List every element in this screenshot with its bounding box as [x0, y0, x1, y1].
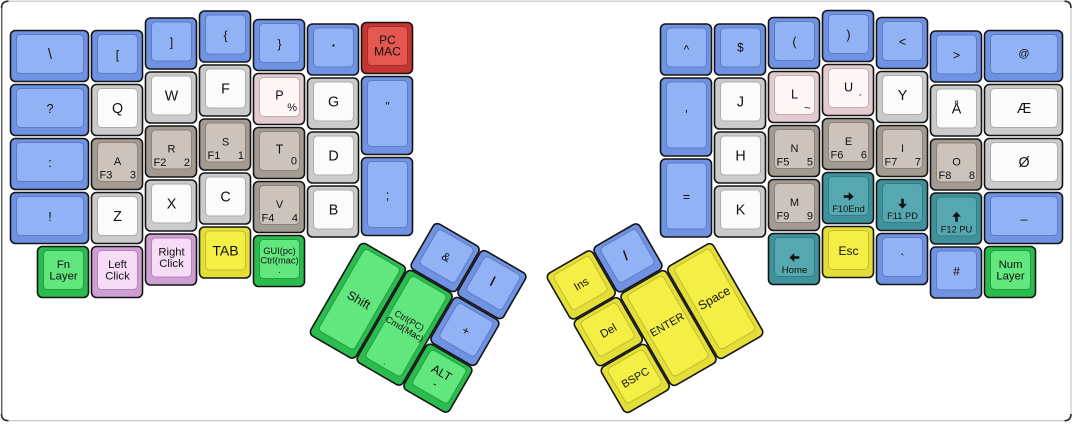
- svg-text:Left: Left: [108, 259, 128, 271]
- svg-text:<: <: [899, 35, 906, 49]
- svg-text:3: 3: [130, 169, 136, 181]
- svg-text:I: I: [901, 143, 904, 155]
- svg-text:Click: Click: [159, 258, 184, 270]
- svg-text:Layer: Layer: [49, 271, 77, 283]
- svg-text:R: R: [168, 144, 176, 156]
- svg-text:Z: Z: [113, 209, 122, 225]
- svg-text:F4: F4: [262, 212, 275, 224]
- svg-text:F6: F6: [831, 149, 844, 161]
- svg-text:!: !: [48, 210, 51, 224]
- svg-text:5: 5: [807, 156, 813, 168]
- svg-text:Num: Num: [999, 259, 1023, 271]
- svg-text:F1: F1: [208, 150, 221, 162]
- svg-text:): ): [846, 28, 850, 42]
- svg-text:?: ?: [47, 102, 54, 116]
- svg-text:%: %: [287, 102, 297, 114]
- svg-text:Home: Home: [782, 265, 808, 276]
- svg-text:MAC: MAC: [374, 45, 401, 59]
- svg-text:C: C: [220, 190, 230, 206]
- svg-text:": ": [385, 100, 389, 114]
- svg-text:Y: Y: [898, 88, 908, 104]
- svg-text:F2: F2: [154, 157, 167, 169]
- svg-text:F3: F3: [100, 169, 113, 181]
- svg-text:Layer: Layer: [996, 271, 1024, 283]
- svg-text:D: D: [328, 149, 338, 165]
- svg-text:B: B: [329, 203, 339, 219]
- svg-text:~: ~: [804, 103, 810, 115]
- svg-text:F8: F8: [939, 170, 952, 182]
- svg-text:@: @: [1018, 48, 1029, 60]
- svg-text:P: P: [275, 89, 283, 103]
- svg-text:}: }: [277, 37, 281, 51]
- svg-text:F5: F5: [777, 156, 790, 168]
- svg-text:$: $: [737, 43, 744, 55]
- svg-text:Right: Right: [158, 246, 185, 258]
- svg-text:F9: F9: [777, 210, 790, 222]
- svg-text:X: X: [167, 197, 177, 213]
- svg-text:': ': [685, 108, 687, 122]
- svg-text:Ø: Ø: [1018, 155, 1029, 171]
- svg-text:L: L: [791, 88, 798, 102]
- svg-text:Q: Q: [112, 101, 123, 117]
- svg-text:F: F: [221, 82, 230, 98]
- svg-text:^: ^: [684, 43, 690, 57]
- svg-text:N: N: [791, 143, 799, 155]
- svg-text:F7: F7: [885, 156, 898, 168]
- svg-text:=: =: [683, 190, 690, 204]
- svg-text:U: U: [844, 81, 853, 95]
- svg-text:O: O: [952, 157, 961, 169]
- svg-text:2: 2: [184, 157, 190, 169]
- svg-text:E: E: [845, 136, 852, 148]
- svg-text:G: G: [328, 95, 339, 111]
- svg-text:A: A: [114, 156, 122, 168]
- svg-text:TAB: TAB: [212, 243, 238, 259]
- svg-text:9: 9: [807, 210, 813, 222]
- svg-text:Click: Click: [105, 271, 130, 283]
- svg-text:T: T: [276, 143, 284, 157]
- svg-text:GUI(pc): GUI(pc): [263, 246, 296, 256]
- svg-text:;: ;: [386, 189, 389, 203]
- svg-text:S: S: [222, 137, 229, 149]
- svg-text:.: .: [278, 265, 281, 275]
- svg-text:_: _: [1020, 207, 1029, 221]
- svg-text:F12 PU: F12 PU: [941, 225, 973, 235]
- svg-text::: :: [48, 156, 51, 170]
- svg-text:\: \: [48, 47, 52, 63]
- svg-text:6: 6: [861, 149, 867, 161]
- svg-text:7: 7: [915, 156, 921, 168]
- svg-text:8: 8: [969, 170, 975, 182]
- svg-text:0: 0: [291, 156, 297, 168]
- svg-text:F11 PD: F11 PD: [887, 211, 918, 221]
- svg-text:>: >: [953, 49, 960, 63]
- svg-text:Å: Å: [952, 101, 962, 118]
- svg-text:M: M: [790, 197, 799, 209]
- svg-text:4: 4: [292, 212, 298, 224]
- svg-text:V: V: [276, 199, 284, 211]
- svg-text:Fn: Fn: [57, 259, 70, 271]
- svg-text:H: H: [735, 149, 745, 165]
- svg-text:J: J: [737, 95, 744, 111]
- svg-text:]: ]: [170, 36, 173, 50]
- svg-text:W: W: [165, 89, 179, 105]
- svg-text:F10End: F10End: [832, 204, 865, 214]
- svg-text:Esc: Esc: [838, 244, 858, 258]
- svg-text:K: K: [736, 203, 746, 219]
- svg-text:´: ´: [859, 94, 863, 106]
- svg-text:#: #: [953, 265, 960, 279]
- svg-text:{: {: [223, 29, 227, 43]
- svg-text:`: `: [900, 252, 904, 266]
- svg-text:Æ: Æ: [1017, 101, 1031, 117]
- svg-text:1: 1: [238, 150, 244, 162]
